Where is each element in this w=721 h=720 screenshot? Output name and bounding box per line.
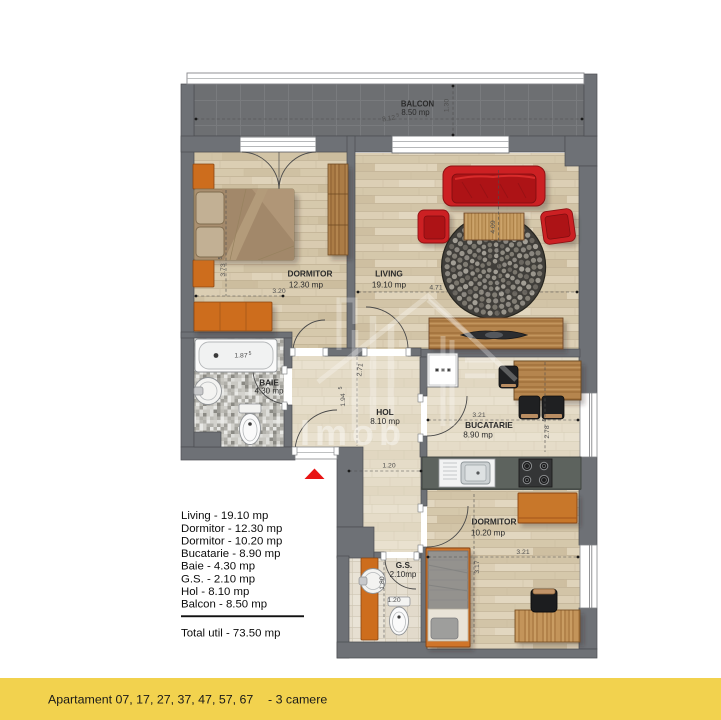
svg-text:5: 5 [542,418,548,421]
svg-text:8.90 mp: 8.90 mp [463,431,493,440]
svg-text:3.17: 3.17 [474,560,481,573]
svg-text:5: 5 [338,386,344,389]
svg-text:5: 5 [249,351,252,357]
svg-text:12.30 mp: 12.30 mp [289,281,324,290]
svg-text:Apartament 07, 17, 27, 37, 47,: Apartament 07, 17, 27, 37, 47, 57, 67 [48,693,253,707]
svg-text:3.20: 3.20 [272,288,285,295]
svg-text:8.10 mp: 8.10 mp [370,417,400,426]
svg-text:1.94: 1.94 [340,393,347,406]
svg-text:G.S. - 2.10 mp: G.S. - 2.10 mp [181,573,255,585]
svg-text:1.20: 1.20 [387,597,400,604]
svg-text:- 3 camere: - 3 camere [268,693,327,707]
svg-text:Baie - 4.30 mp: Baie - 4.30 mp [181,561,255,573]
svg-text:Balcon - 8.50 mp: Balcon - 8.50 mp [181,599,267,611]
svg-text:3.21: 3.21 [472,412,485,419]
svg-text:1.80: 1.80 [379,576,386,589]
svg-text:19.10 mp: 19.10 mp [372,281,407,290]
svg-text:1.30: 1.30 [444,99,451,112]
svg-text:Hol - 8.10 mp: Hol - 8.10 mp [181,586,249,598]
svg-text:2.78: 2.78 [544,425,551,438]
svg-text:4.09: 4.09 [490,220,497,233]
svg-text:4.30 mp: 4.30 mp [255,387,284,396]
svg-text:Living - 19.10 mp: Living - 19.10 mp [181,510,268,522]
svg-text:5: 5 [218,256,224,259]
svg-text:1.87: 1.87 [234,353,247,360]
svg-text:10.20 mp: 10.20 mp [471,529,506,538]
svg-text:8.50 mp: 8.50 mp [401,108,430,117]
svg-text:Bucatarie - 8.90 mp: Bucatarie - 8.90 mp [181,548,280,560]
svg-text:Dormitor - 12.30 mp: Dormitor - 12.30 mp [181,523,282,535]
svg-text:4.71: 4.71 [429,285,442,292]
svg-text:LIVING: LIVING [375,269,403,279]
svg-text:1.20: 1.20 [382,463,395,470]
svg-text:DORMITOR: DORMITOR [471,517,516,527]
svg-text:3.73: 3.73 [220,263,227,276]
svg-text:G.S.: G.S. [396,561,412,570]
svg-text:Total util - 73.50 mp: Total util - 73.50 mp [181,628,280,640]
svg-text:3.21: 3.21 [516,549,529,556]
svg-text:BUCATARIE: BUCATARIE [465,420,513,430]
svg-text:HOL: HOL [376,407,394,417]
svg-text:Dormitor - 10.20 mp: Dormitor - 10.20 mp [181,536,282,548]
svg-text:DORMITOR: DORMITOR [287,269,332,279]
svg-text:2.10mp: 2.10mp [390,570,417,579]
